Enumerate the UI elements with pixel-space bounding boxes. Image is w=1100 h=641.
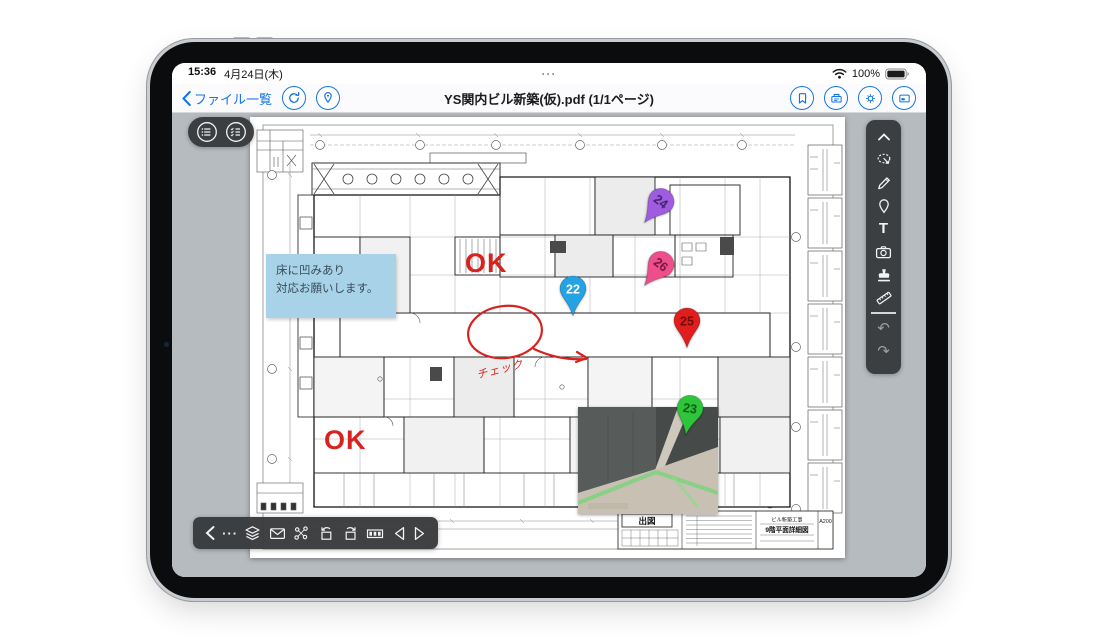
pin-map-button[interactable] — [292, 524, 311, 543]
pdf-page[interactable]: 出図 ビル新築工事 9階平面詳細図 A200 — [250, 117, 845, 558]
stamp-icon — [875, 266, 893, 284]
back-to-files-button[interactable]: ファイル一覧 — [182, 89, 272, 108]
undo-icon: ↶ — [877, 321, 890, 336]
rotate-left-icon — [317, 524, 336, 543]
lasso-select-icon — [875, 151, 893, 169]
multitask-indicator[interactable]: ··· — [172, 67, 926, 81]
pin-mode-button[interactable] — [316, 86, 340, 110]
collapse-toolbar-button[interactable] — [203, 524, 217, 542]
settings-button[interactable] — [858, 86, 882, 110]
pin-balloon-icon — [875, 197, 893, 215]
display-icon — [897, 91, 912, 106]
map-pin-22[interactable]: 22 — [558, 275, 588, 317]
titleblock-sheet-title: 9階平面詳細図 — [765, 525, 809, 534]
svg-text:25: 25 — [680, 315, 694, 329]
pin-tool[interactable] — [872, 194, 896, 217]
stamp-tool[interactable] — [872, 263, 896, 286]
triangle-right-icon — [412, 524, 428, 543]
titleblock-sheet-no: A200 — [819, 519, 832, 525]
titleblock-project: ビル新築工事 — [771, 516, 802, 524]
mail-icon — [268, 524, 287, 543]
redo-icon: ↷ — [877, 344, 890, 359]
layers-button[interactable] — [243, 524, 262, 543]
mail-button[interactable] — [268, 524, 287, 543]
pin-map-icon — [292, 524, 311, 543]
text-tool-glyph: T — [879, 221, 888, 236]
svg-text:23: 23 — [682, 401, 698, 417]
redo-button[interactable]: ↷ — [872, 340, 896, 363]
bottom-toolbar: ··· — [193, 517, 438, 549]
ok-annotation-top[interactable]: OK — [465, 248, 508, 279]
layers-icon — [243, 524, 262, 543]
status-bar: 15:36 4月24日(木) ··· 100% — [172, 63, 926, 84]
pen-tool[interactable] — [872, 171, 896, 194]
floorplan-drawing: 出図 ビル新築工事 9階平面詳細図 A200 — [250, 117, 845, 558]
ruler-icon — [875, 289, 893, 307]
refresh-button[interactable] — [282, 86, 306, 110]
note-line-2: 対応お願いします。 — [276, 281, 386, 299]
next-page-button[interactable] — [412, 524, 428, 543]
annotation-list-button[interactable] — [196, 121, 218, 143]
annotation-tool-palette: T — [866, 120, 901, 374]
thumbnails-icon — [365, 524, 385, 543]
pdf-viewport[interactable]: 出図 ビル新築工事 9階平面詳細図 A200 — [172, 113, 926, 577]
rotate-right-button[interactable] — [341, 524, 360, 543]
undo-button[interactable]: ↶ — [872, 317, 896, 340]
rotate-right-icon — [341, 524, 360, 543]
front-camera — [164, 342, 169, 347]
chevron-up-icon — [875, 128, 893, 146]
map-pin-icon — [320, 90, 336, 106]
rotate-left-button[interactable] — [317, 524, 336, 543]
previous-page-button[interactable] — [391, 524, 407, 543]
pencil-icon — [875, 174, 893, 192]
ruler-tool[interactable] — [872, 286, 896, 309]
refresh-icon — [286, 90, 302, 106]
palette-divider — [871, 312, 896, 314]
sticky-note-annotation[interactable]: 床に凹みあり 対応お願いします。 — [266, 254, 396, 318]
back-label: ファイル一覧 — [194, 89, 272, 108]
svg-text:22: 22 — [566, 283, 580, 297]
lasso-select-tool[interactable] — [872, 148, 896, 171]
more-button[interactable]: ··· — [222, 527, 238, 540]
note-line-1: 床に凹みあり — [276, 263, 386, 281]
collapse-palette-button[interactable] — [872, 125, 896, 148]
printer-icon — [829, 91, 844, 106]
display-mode-button[interactable] — [892, 86, 916, 110]
list-toggle-pill — [188, 117, 254, 147]
thumbnails-button[interactable] — [365, 524, 385, 543]
bookmark-icon — [795, 91, 810, 106]
map-pin-25[interactable]: 25 — [672, 307, 702, 349]
text-tool[interactable]: T — [872, 217, 896, 240]
chevron-left-icon — [182, 91, 191, 106]
titleblock-stamp: 出図 — [638, 516, 655, 526]
bookmark-button[interactable] — [790, 86, 814, 110]
camera-icon — [874, 243, 893, 261]
ok-annotation-bottom[interactable]: OK — [324, 425, 367, 456]
stage: 15:36 4月24日(木) ··· 100% YS関内ビル新築( — [0, 0, 1100, 641]
gear-icon — [863, 91, 878, 106]
nav-toolbar: YS関内ビル新築(仮).pdf (1/1ページ) ファイル一覧 — [172, 84, 926, 113]
camera-tool[interactable] — [872, 240, 896, 263]
ipad-screen: 15:36 4月24日(木) ··· 100% YS関内ビル新築( — [172, 63, 926, 577]
checklist-button[interactable] — [225, 121, 247, 143]
triangle-left-icon — [391, 524, 407, 543]
chevron-left-icon — [203, 524, 217, 542]
print-button[interactable] — [824, 86, 848, 110]
more-icon: ··· — [222, 527, 238, 540]
